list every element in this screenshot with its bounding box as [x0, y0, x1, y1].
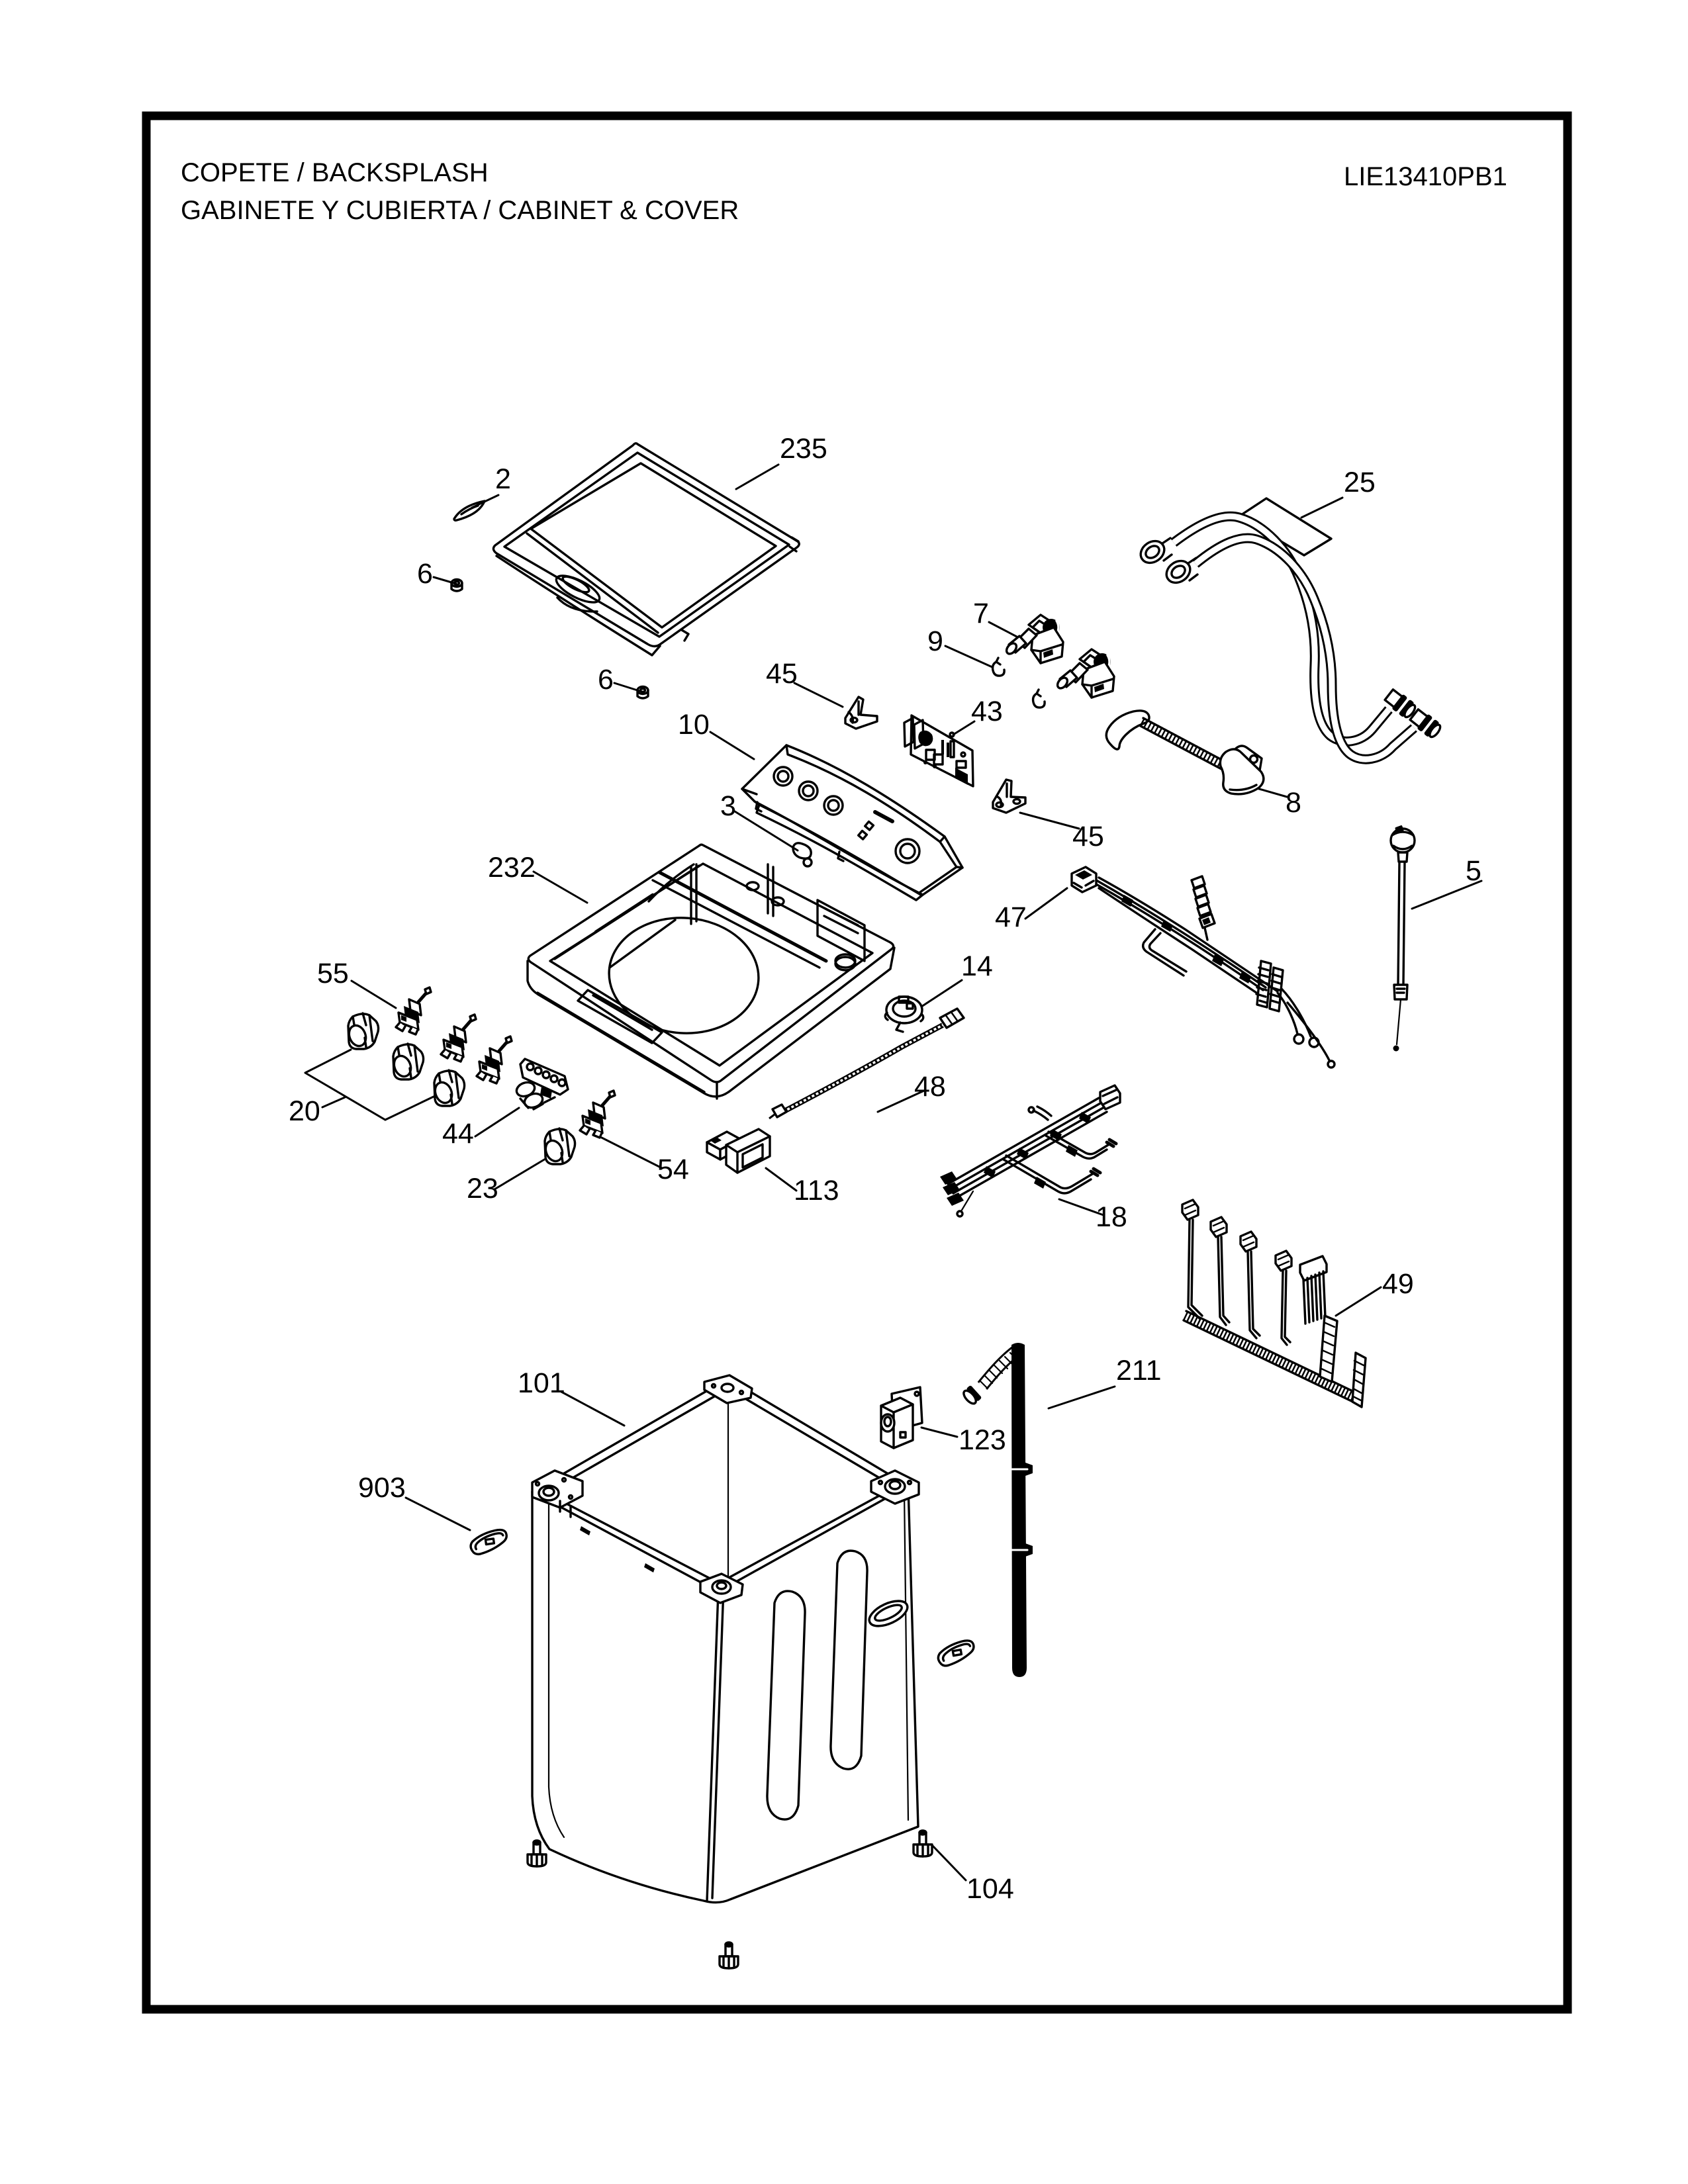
svg-text:COPETE / BACKSPLASH: COPETE / BACKSPLASH [181, 158, 489, 187]
svg-text:54: 54 [657, 1154, 689, 1185]
svg-text:43: 43 [971, 696, 1003, 727]
svg-text:47: 47 [995, 901, 1027, 933]
svg-text:903: 903 [358, 1472, 406, 1504]
svg-text:123: 123 [959, 1424, 1006, 1456]
svg-text:9: 9 [927, 625, 943, 657]
svg-text:GABINETE Y CUBIERTA / CABINET: GABINETE Y CUBIERTA / CABINET & COVER [181, 196, 739, 225]
svg-text:211: 211 [1116, 1355, 1162, 1387]
svg-text:10: 10 [678, 709, 710, 741]
svg-text:20: 20 [289, 1095, 320, 1127]
svg-text:44: 44 [442, 1118, 474, 1150]
svg-text:6: 6 [598, 664, 614, 696]
svg-text:113: 113 [794, 1175, 839, 1206]
svg-text:2: 2 [495, 463, 511, 495]
svg-text:232: 232 [488, 852, 536, 884]
svg-text:101: 101 [518, 1367, 565, 1399]
svg-text:45: 45 [766, 658, 798, 690]
svg-text:45: 45 [1072, 821, 1104, 852]
svg-text:3: 3 [720, 790, 736, 822]
svg-text:18: 18 [1096, 1201, 1127, 1233]
svg-text:49: 49 [1382, 1268, 1414, 1300]
svg-text:8: 8 [1286, 787, 1301, 819]
svg-text:23: 23 [467, 1173, 498, 1205]
svg-text:235: 235 [780, 433, 827, 465]
svg-text:LIE13410PB1: LIE13410PB1 [1344, 162, 1507, 191]
svg-text:14: 14 [961, 950, 993, 982]
svg-text:6: 6 [417, 558, 433, 590]
svg-text:7: 7 [973, 598, 989, 629]
svg-text:55: 55 [317, 958, 349, 989]
svg-text:104: 104 [966, 1873, 1014, 1905]
svg-text:25: 25 [1344, 467, 1376, 498]
svg-text:48: 48 [914, 1071, 946, 1103]
